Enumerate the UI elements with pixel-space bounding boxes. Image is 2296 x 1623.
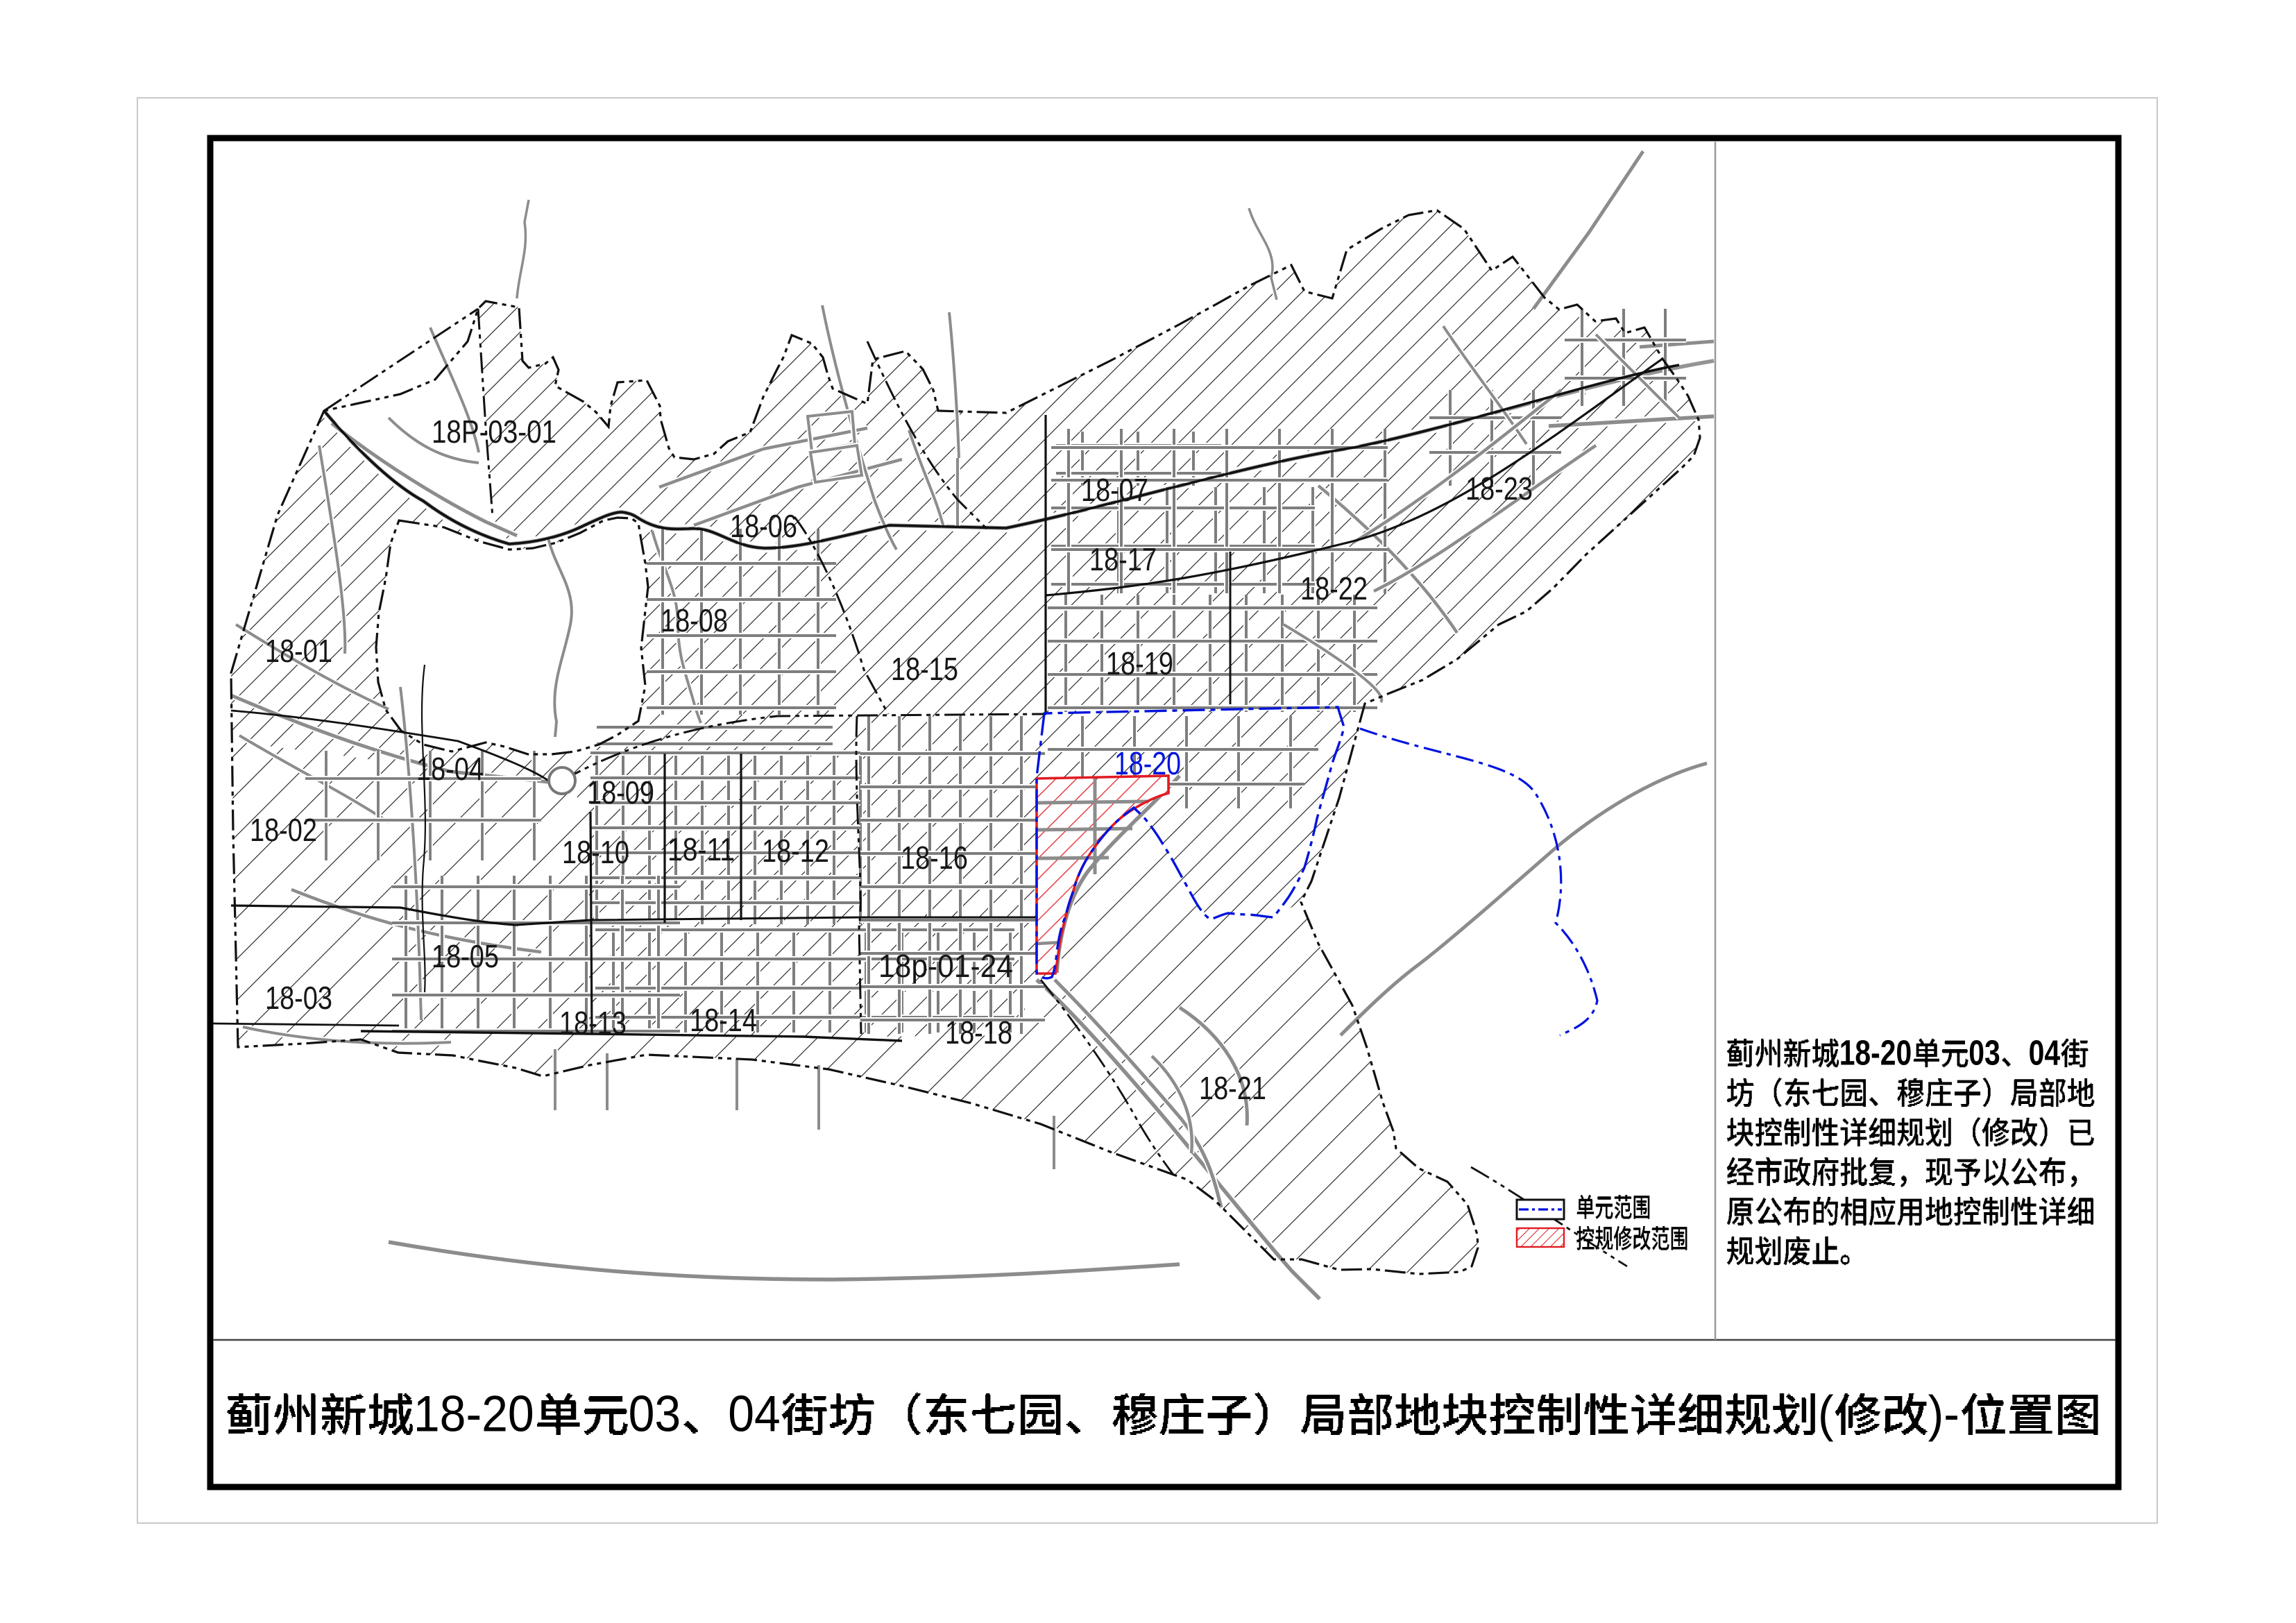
svg-text:18-13: 18-13 <box>559 1005 627 1041</box>
svg-text:18-14: 18-14 <box>690 1002 757 1038</box>
svg-text:18-18: 18-18 <box>945 1014 1012 1051</box>
svg-text:18-01: 18-01 <box>265 633 332 669</box>
svg-text:04: 04 <box>2029 1033 2061 1072</box>
svg-text:)-: )- <box>1928 1385 1959 1443</box>
svg-text:18-21: 18-21 <box>1199 1070 1266 1106</box>
svg-text:18p-01-24: 18p-01-24 <box>878 948 1013 984</box>
svg-text:18P-03-01: 18P-03-01 <box>432 414 556 450</box>
svg-text:(: ( <box>1818 1385 1834 1443</box>
svg-text:03: 03 <box>1968 1033 2000 1072</box>
svg-text:18-04: 18-04 <box>416 751 484 787</box>
svg-text:18-05: 18-05 <box>432 938 499 974</box>
svg-text:18-23: 18-23 <box>1465 470 1533 507</box>
svg-text:18-16: 18-16 <box>901 840 968 876</box>
svg-text:18-20: 18-20 <box>414 1385 534 1443</box>
svg-text:18-08: 18-08 <box>661 602 728 638</box>
svg-text:18-20: 18-20 <box>1839 1033 1912 1072</box>
svg-text:18-09: 18-09 <box>587 774 654 810</box>
svg-text:18-03: 18-03 <box>265 980 332 1016</box>
svg-text:18-22: 18-22 <box>1300 570 1368 606</box>
svg-text:18-10: 18-10 <box>562 834 629 870</box>
svg-text:18-11: 18-11 <box>667 831 735 867</box>
svg-text:18-02: 18-02 <box>250 812 317 848</box>
svg-text:18-17: 18-17 <box>1089 541 1157 577</box>
svg-text:18-07: 18-07 <box>1081 472 1148 508</box>
svg-text:18-06: 18-06 <box>730 508 797 544</box>
svg-text:18-19: 18-19 <box>1106 645 1173 681</box>
svg-text:03: 03 <box>629 1385 681 1443</box>
svg-text:18-15: 18-15 <box>891 651 958 687</box>
svg-text:04: 04 <box>728 1385 781 1443</box>
svg-text:18-12: 18-12 <box>762 833 829 869</box>
svg-text:18-20: 18-20 <box>1114 745 1181 781</box>
